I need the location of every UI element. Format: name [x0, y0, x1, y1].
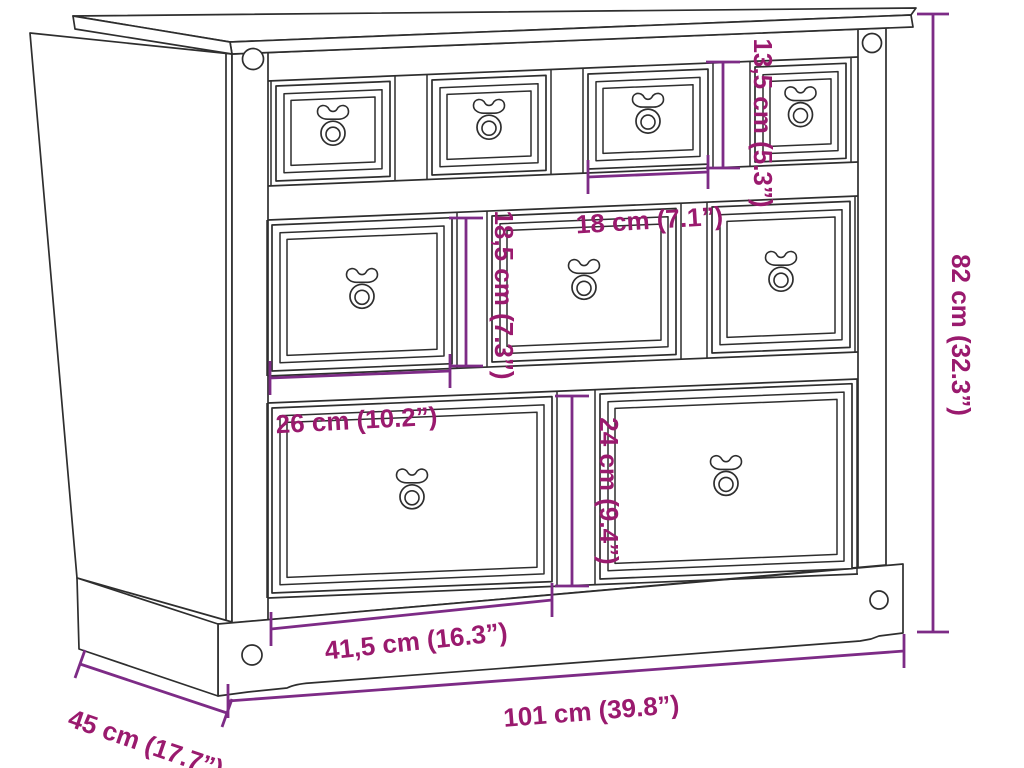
dim-label-mid-drawer-height: 18,5 cm (7.3”) — [489, 210, 519, 379]
dim-label-total-depth: 45 cm (17.7”) — [65, 703, 228, 768]
cabinet-side-panel — [30, 33, 232, 622]
dim-label-total-width: 101 cm (39.8”) — [502, 689, 680, 733]
dim-label-large-drawer-height: 24 cm (9.4”) — [594, 417, 624, 564]
dim-line-total-height — [917, 14, 949, 632]
dim-label-total-height: 82 cm (32.3”) — [946, 254, 976, 416]
diagram-canvas: 13,5 cm (5.3”) 18 cm (7.1”) 18,5 cm (7.3… — [0, 0, 1024, 768]
peg-bottom-left — [242, 645, 262, 665]
cabinet-drawing — [30, 8, 916, 696]
peg-top-right — [863, 34, 882, 53]
furniture-dimension-diagram: 13,5 cm (5.3”) 18 cm (7.1”) 18,5 cm (7.3… — [0, 0, 1024, 768]
dim-label-small-drawer-height: 13,5 cm (5.3”) — [748, 38, 778, 207]
peg-bottom-right — [870, 591, 888, 609]
peg-top-left — [243, 49, 264, 70]
